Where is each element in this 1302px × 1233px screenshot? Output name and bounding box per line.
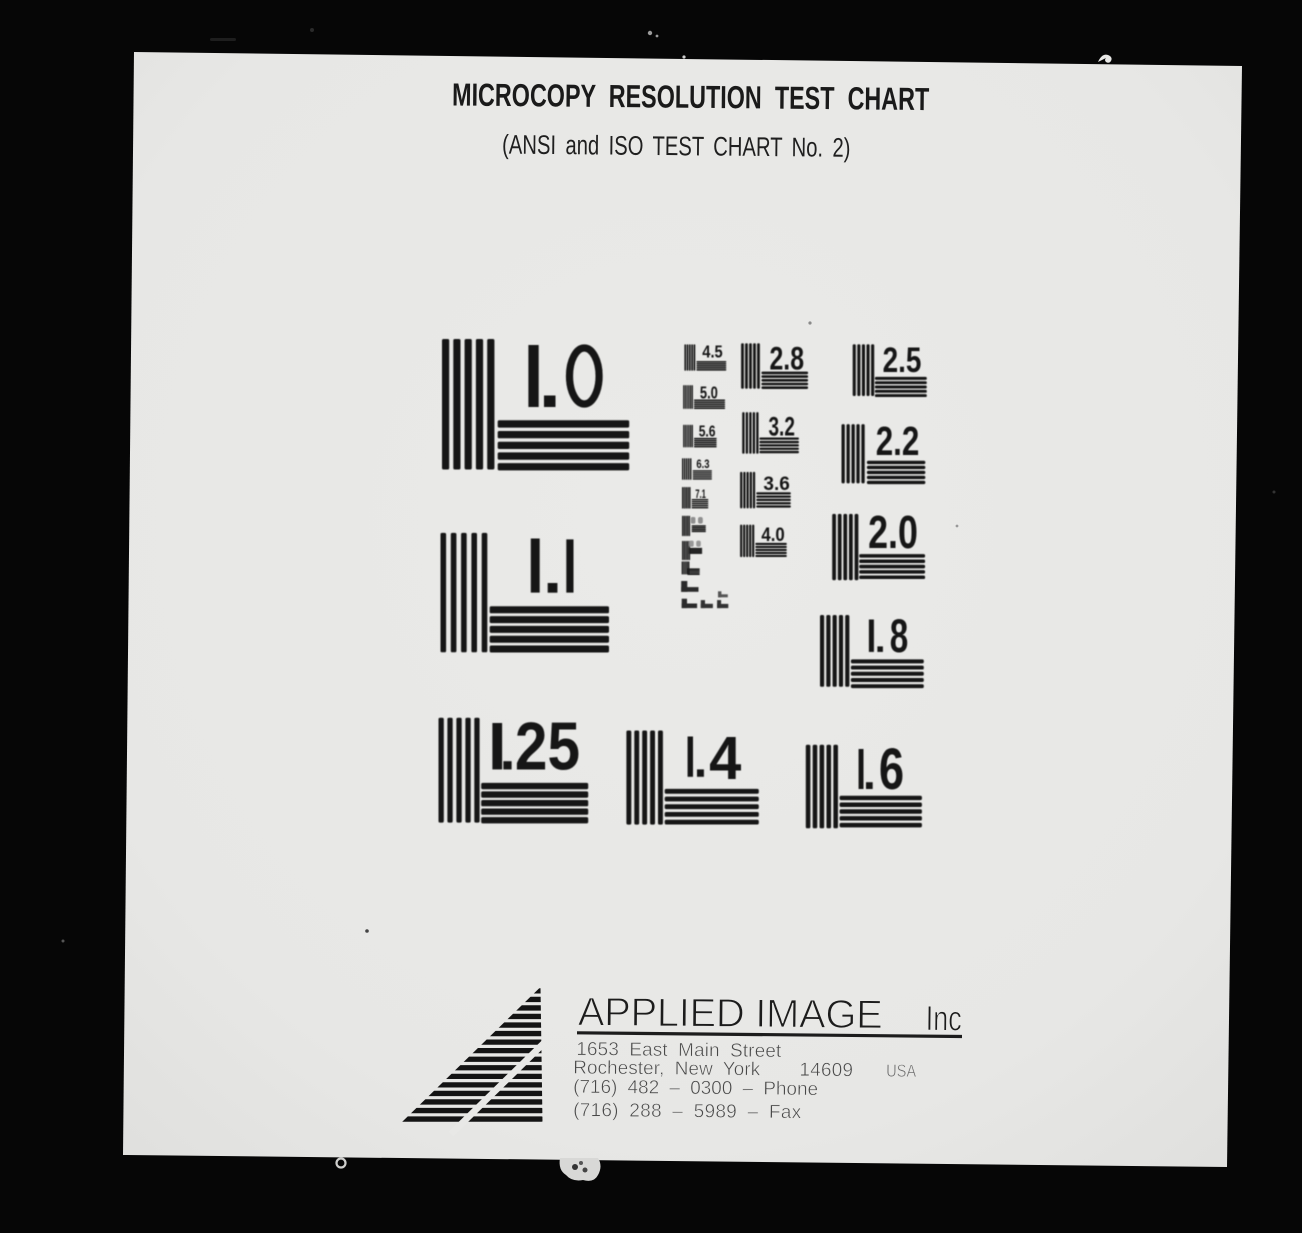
svg-text:2.2: 2.2 [876,418,920,464]
svg-text:(716) 288 – 5989 – Fax: (716) 288 – 5989 – Fax [573,1100,802,1123]
svg-text:(716) 482 – 0300 – Phone: (716) 482 – 0300 – Phone [573,1077,818,1100]
svg-text:MICROCOPY RESOLUTION TEST CHAR: MICROCOPY RESOLUTION TEST CHART [452,77,929,117]
svg-text:5.0: 5.0 [700,382,718,402]
svg-text:2.8: 2.8 [770,340,805,377]
svg-text:7.1: 7.1 [695,487,706,501]
svg-text:(ANSI and ISO TEST CHART No. 2: (ANSI and ISO TEST CHART No. 2) [502,130,851,164]
svg-text:3.2: 3.2 [769,411,795,441]
svg-text:2.0: 2.0 [868,506,918,558]
svg-text:8: 8 [890,609,909,662]
svg-text:4.0: 4.0 [761,525,784,546]
svg-text:2.5: 2.5 [883,341,922,380]
svg-text:3.6: 3.6 [763,474,789,495]
svg-text:6: 6 [879,737,904,802]
svg-text:4.5: 4.5 [702,342,723,362]
svg-text:4: 4 [709,724,741,793]
svg-text:APPLIED IMAGE: APPLIED IMAGE [578,990,883,1037]
svg-text:USA: USA [886,1061,916,1081]
svg-text:25: 25 [515,709,580,784]
svg-text:6.3: 6.3 [696,457,709,471]
svg-text:14609: 14609 [799,1060,853,1082]
svg-text:Inc: Inc [926,999,962,1038]
